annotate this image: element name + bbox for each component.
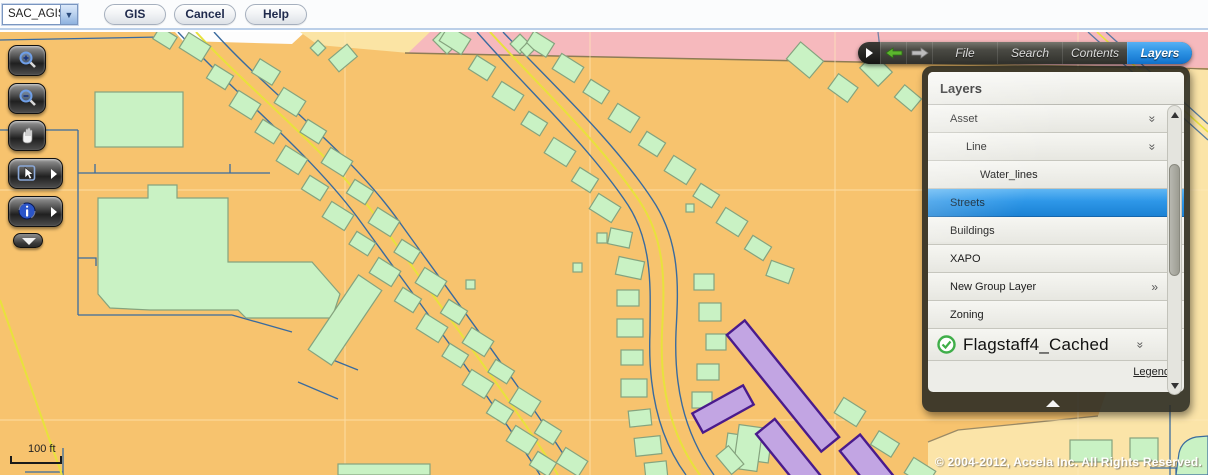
layer-item-new-group-layer[interactable]: New Group Layer »	[928, 273, 1184, 301]
panel-collapse-handle[interactable]	[922, 394, 1190, 412]
layer-item-xapo[interactable]: XAPO	[928, 245, 1184, 273]
scrollbar-thumb[interactable]	[1169, 164, 1180, 276]
scale-bar	[10, 456, 62, 464]
chevron-down-icon: ▼	[65, 10, 74, 20]
dataset-select-value: SAC_AGIS	[8, 8, 66, 20]
flyout-arrow-icon[interactable]	[51, 207, 57, 217]
pan-button[interactable]	[8, 120, 46, 151]
chevron-double-down-icon: »	[1127, 342, 1155, 349]
chevron-up-icon	[1046, 400, 1060, 407]
layer-item-buildings[interactable]: Buildings	[928, 217, 1184, 245]
help-button[interactable]: Help	[245, 4, 307, 25]
identify-button[interactable]	[8, 196, 63, 227]
chevron-double-down-icon: »	[1139, 144, 1167, 151]
map-copyright: © 2004-2012, Accela Inc. All Rights Rese…	[935, 455, 1202, 469]
flyout-arrow-icon[interactable]	[51, 169, 57, 179]
basemap-item-flagstaff4-cached[interactable]: Flagstaff4_Cached »	[928, 329, 1184, 361]
back-arrow-icon	[885, 47, 903, 59]
back-arrow-button[interactable]	[880, 42, 906, 64]
layers-scrollbar[interactable]	[1167, 105, 1182, 395]
layers-panel-title: Layers	[928, 72, 1184, 105]
pan-hand-icon	[17, 125, 39, 147]
collapse-toolbar-button[interactable]	[13, 233, 43, 248]
dataset-select-arrow-button[interactable]: ▼	[60, 5, 77, 24]
layer-item-zoning[interactable]: Zoning	[928, 301, 1184, 329]
chevron-double-right-icon: »	[1151, 273, 1158, 301]
zoom-out-icon	[17, 88, 39, 110]
tab-layers[interactable]: Layers	[1127, 42, 1192, 64]
layer-item-asset[interactable]: Asset »	[928, 105, 1184, 133]
play-icon	[866, 48, 873, 58]
layer-item-line[interactable]: Line »	[928, 133, 1184, 161]
layer-item-streets[interactable]: Streets	[928, 189, 1184, 217]
panel-tab-bar: File Search Contents Layers	[858, 42, 1192, 64]
zoom-out-button[interactable]	[8, 83, 46, 114]
dataset-select[interactable]: SAC_AGIS ▼	[2, 4, 78, 25]
up-arrow-icon	[1171, 112, 1179, 118]
select-cursor-icon	[17, 163, 39, 185]
tab-search[interactable]: Search	[997, 42, 1062, 64]
panel-expander-button[interactable]	[858, 42, 880, 64]
down-arrow-icon	[1171, 383, 1179, 389]
chevron-down-icon	[22, 238, 36, 245]
scroll-down-button[interactable]	[1168, 378, 1181, 393]
green-check-icon	[937, 335, 956, 354]
gis-application-window: SAC_AGIS ▼ GIS Cancel Help	[0, 0, 1208, 475]
info-icon	[17, 201, 39, 223]
scale-bar-label: 100 ft	[28, 443, 56, 455]
forward-arrow-button[interactable]	[906, 42, 932, 64]
zoom-in-icon	[17, 50, 39, 72]
application-toolbar: SAC_AGIS ▼ GIS Cancel Help	[0, 0, 1208, 30]
layer-item-water-lines[interactable]: Water_lines	[928, 161, 1184, 189]
forward-arrow-icon	[911, 47, 929, 59]
chevron-double-down-icon: »	[1139, 116, 1167, 123]
tab-contents[interactable]: Contents	[1062, 42, 1127, 64]
scroll-up-button[interactable]	[1168, 107, 1181, 122]
legend-link[interactable]: Legend	[1133, 366, 1170, 378]
layers-panel: Layers Asset » Line » Water_lines Street…	[922, 66, 1190, 412]
select-button[interactable]	[8, 158, 63, 189]
tab-file[interactable]: File	[932, 42, 997, 64]
zoom-in-button[interactable]	[8, 45, 46, 76]
cancel-button[interactable]: Cancel	[174, 4, 236, 25]
gis-button[interactable]: GIS	[104, 4, 166, 25]
